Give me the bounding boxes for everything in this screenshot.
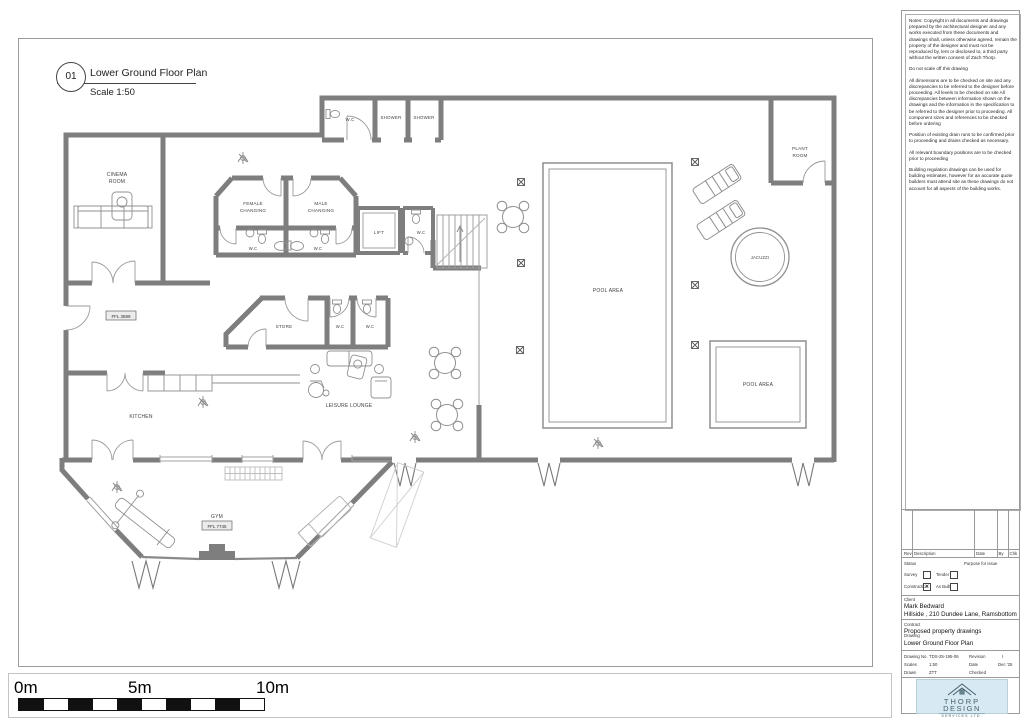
notes-paragraph: All relevant boundary positions are to b…: [909, 150, 1018, 162]
divider: [902, 595, 1019, 596]
rev-col-header: Rev: [904, 551, 912, 556]
scalebar-start-label: 0m: [14, 678, 38, 698]
divider: [902, 677, 1019, 678]
drawing-frame: [18, 38, 873, 667]
divider: [902, 619, 1019, 620]
drawn-label: Drawn: [904, 670, 916, 675]
drawn-value: ZTT: [929, 670, 937, 675]
graphic-scale-bar: [18, 698, 265, 711]
client-name: Mark Bedward: [904, 603, 944, 610]
architectural-drawing-sheet: { "sheet": { "bubble_number": "01", "tit…: [0, 0, 1024, 723]
date-value: Dec '25: [998, 662, 1012, 667]
drawing-no-value: TDS-25-195-06: [929, 654, 959, 659]
checked-label: Checked: [969, 670, 986, 675]
chk-col-header: Chk: [1010, 551, 1018, 556]
detail-number-bubble: 01: [56, 62, 86, 92]
notes-paragraph: Position of existing drain runs to be co…: [909, 132, 1018, 144]
scales-value: 1:50: [929, 662, 937, 667]
notes-paragraph: Notes: Copyright in all documents and dr…: [909, 18, 1018, 61]
notes-box: Notes: Copyright in all documents and dr…: [905, 14, 1021, 511]
revision-label: Revision: [969, 654, 985, 659]
as-built-label: As Built: [936, 584, 951, 589]
construction-checkbox[interactable]: ✕: [923, 583, 931, 591]
title-block-panel: Notes: Copyright in all documents and dr…: [901, 10, 1020, 714]
divider: [902, 509, 1019, 510]
notes-paragraph: All dimensions are to be checked on site…: [909, 78, 1018, 128]
divider: [902, 557, 1019, 558]
tender-checkbox[interactable]: [950, 571, 958, 579]
date-col-header: Date: [976, 551, 985, 556]
page-title: Lower Ground Floor Plan: [90, 67, 207, 79]
divider: [902, 650, 1019, 651]
page-scale: Scale 1:50: [90, 87, 135, 98]
scalebar-end-label: 10m: [256, 678, 289, 698]
scalebar-mid-label: 5m: [128, 678, 152, 698]
drawing-label: Drawing: [904, 633, 920, 638]
logo-line-3: SERVICES LTD.: [939, 713, 984, 719]
as-built-checkbox[interactable]: [950, 583, 958, 591]
survey-checkbox[interactable]: [923, 571, 931, 579]
logo-line-2: DESIGN: [917, 705, 1007, 713]
by-col-header: By: [999, 551, 1004, 556]
client-address: Hillside , 210 Dundee Lane, Ramsbottom: [904, 611, 1017, 618]
description-col-header: Description: [914, 551, 936, 556]
contract-label: Contract: [904, 622, 920, 627]
tender-label: Tender: [936, 572, 949, 577]
scales-label: Scales: [904, 662, 917, 667]
date-label: Date: [969, 662, 978, 667]
revision-value: I: [1002, 654, 1003, 659]
client-label: Client: [904, 597, 915, 602]
survey-label: Survey: [904, 572, 917, 577]
roof-icon: [945, 681, 979, 696]
notes-paragraph: Do not scale off this drawing: [909, 66, 1018, 72]
notes-paragraph: Building regulation drawings can be used…: [909, 167, 1018, 192]
drawing-no-label: Drawing No.: [904, 654, 928, 659]
status-purpose: Purpose for issue: [964, 561, 997, 566]
company-logo: THORP DESIGN SERVICES LTD.: [916, 679, 1008, 714]
status-label: Status: [904, 561, 916, 566]
drawing-title-value: Lower Ground Floor Plan: [904, 640, 973, 647]
